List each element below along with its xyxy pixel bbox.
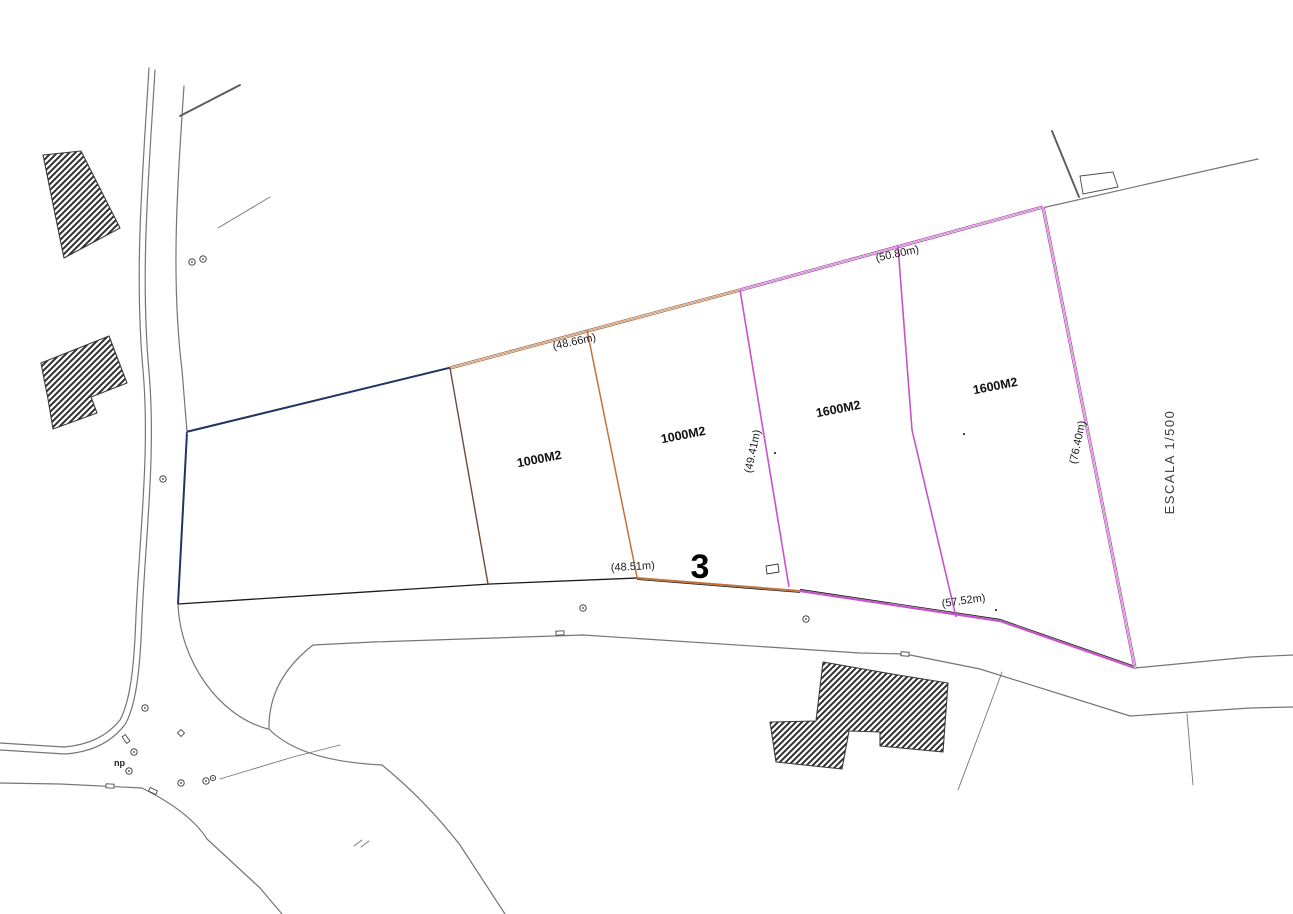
building-hatched-west [41, 336, 127, 429]
boundary-bottom-orange [637, 578, 800, 591]
road-topright-diagonal [1052, 131, 1079, 197]
zone-number-label: 3 [691, 548, 710, 586]
building-hatched-northwest [43, 151, 120, 258]
road-branch-se-1 [1187, 714, 1193, 785]
road-left-inner-line [176, 86, 187, 432]
parcel-area-label-2: 1000M2 [660, 424, 707, 446]
point-dot [963, 433, 965, 435]
boundary-right-magenta-core [1043, 207, 1135, 668]
tiny-annotation-marks [354, 840, 369, 847]
site-plan-canvas: (48.66m) (50.80m) (48.51m) (57.52m) (49.… [0, 0, 1293, 914]
survey-marker-dot [202, 258, 204, 260]
point-dot [774, 452, 776, 454]
divider-parcel-1 [450, 368, 488, 584]
building-hatched-south [770, 662, 948, 769]
buildings [41, 151, 948, 769]
street-se-west-curb [0, 783, 282, 914]
small-rect-symbol [766, 564, 779, 574]
survey-square [177, 729, 184, 736]
curb-tick-marks [106, 631, 909, 795]
survey-marker-dot [582, 607, 584, 609]
labels: (48.66m) (50.80m) (48.51m) (57.52m) (49.… [114, 244, 1177, 768]
parcel-area-label-3: 1600M2 [815, 398, 862, 420]
curb-tick [901, 652, 909, 657]
boundary-left-navy [178, 432, 187, 604]
cadastral-plan-svg: (48.66m) (50.80m) (48.51m) (57.52m) (49.… [0, 0, 1293, 914]
measurement-bottom-right: (57.52m) [941, 592, 986, 610]
road-topright-gate-rect [1080, 172, 1118, 194]
scale-label: ESCALA 1/500 [1162, 410, 1177, 515]
junction-inner-line [220, 745, 340, 779]
curb-tick [122, 735, 130, 744]
boundary-top-orange-core [450, 290, 740, 368]
point-dots [774, 433, 997, 611]
parcel-area-label-4: 1600M2 [972, 375, 1019, 397]
measurement-divider-mid: (49.41m) [743, 429, 764, 475]
survey-marker-dot [128, 770, 130, 772]
curb-tick [556, 631, 564, 635]
divider-parcel-3 [740, 290, 789, 587]
survey-marker-dot [133, 751, 135, 753]
boundary-topleft-navy-inner [188, 370, 451, 434]
measurement-right-edge: (76.40m) [1068, 420, 1089, 466]
parcel-area-label-1: 1000M2 [516, 448, 563, 470]
road-east-continuation [1135, 655, 1293, 668]
divider-parcel-2 [587, 330, 637, 577]
survey-marker-dot [162, 478, 164, 480]
survey-marker-dot [180, 782, 182, 784]
parcel-boundaries [178, 207, 1135, 668]
survey-marker-dot [144, 707, 146, 709]
survey-marker-dot [805, 618, 807, 620]
road-branch-mid [218, 197, 270, 228]
road-branch-upper [180, 85, 240, 116]
survey-circle-markers [126, 256, 809, 786]
curb-tick [149, 787, 158, 794]
survey-marker-dot [212, 777, 214, 779]
street-se-east-curb [382, 765, 505, 914]
boundary-bottom-orange-ink [637, 580, 800, 593]
boundary-topleft-navy [187, 368, 450, 432]
junction-curb-v [269, 642, 382, 765]
point-dot [995, 609, 997, 611]
survey-marker-dot [191, 261, 193, 263]
curb-tick [106, 784, 114, 788]
divider-parcel-4 [898, 246, 956, 617]
survey-marker-dot [205, 780, 207, 782]
measurement-bottom-inner: (48.51m) [611, 560, 656, 574]
road-branch-se-2 [958, 672, 1002, 790]
road-left-inner-line-lower [178, 604, 268, 729]
np-note-label: np [114, 758, 125, 768]
boundary-bottom-ink [178, 578, 637, 604]
